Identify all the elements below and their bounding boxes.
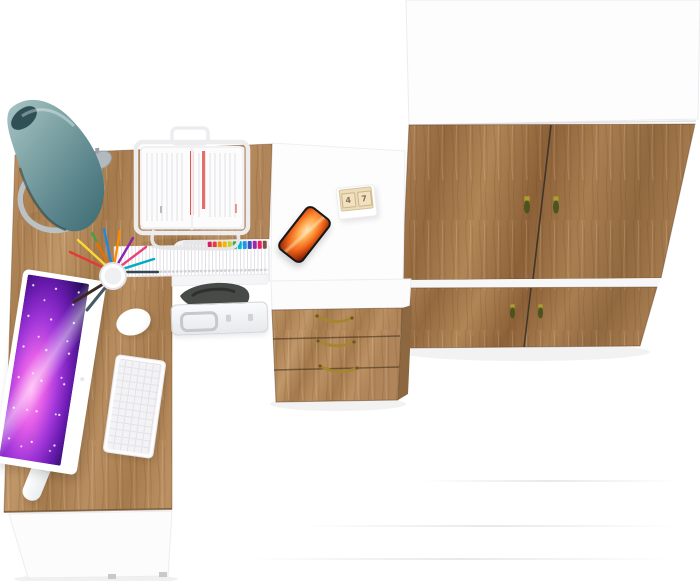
pen-cup bbox=[70, 229, 158, 310]
tray-red-stripe bbox=[202, 151, 205, 209]
tray-red-mark bbox=[235, 204, 237, 213]
tray-gray-mark bbox=[160, 206, 162, 213]
pen-cup-opening bbox=[105, 268, 122, 285]
render-canvas: 4 7 bbox=[0, 0, 700, 581]
props-layer bbox=[0, 0, 700, 581]
lamp bbox=[7, 100, 115, 239]
paper-tray bbox=[136, 128, 248, 250]
